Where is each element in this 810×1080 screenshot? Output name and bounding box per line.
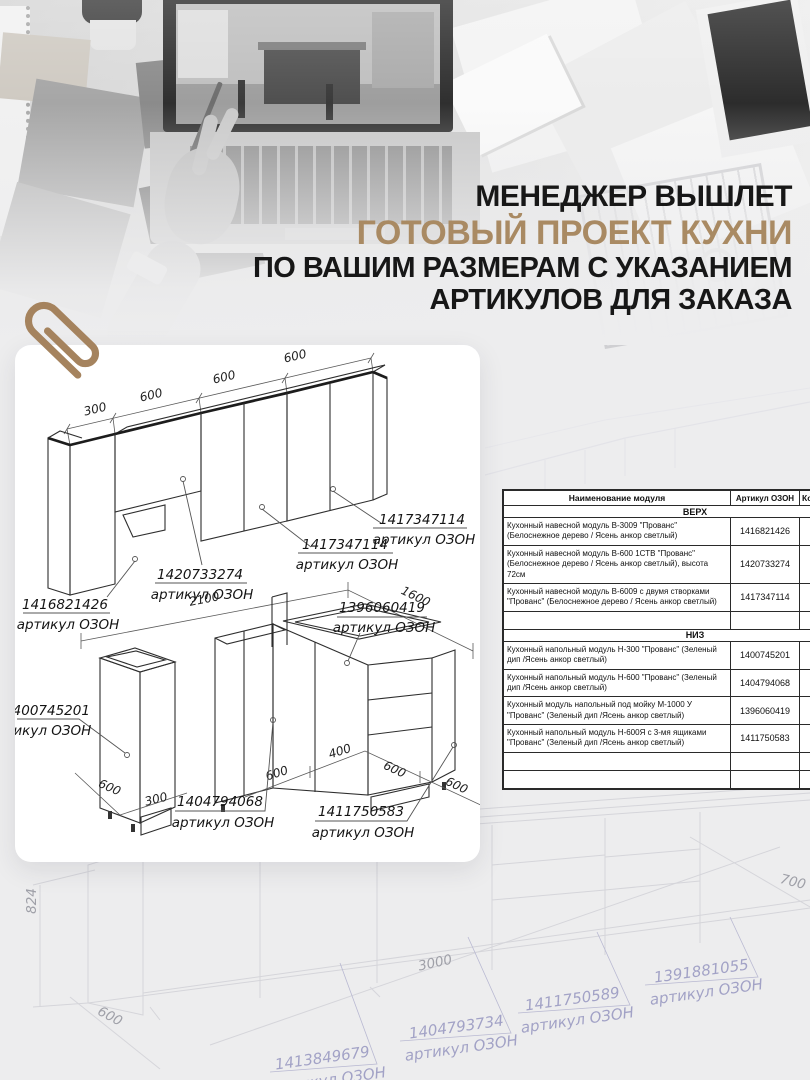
module-article: 1411750583	[731, 725, 800, 753]
table-row: Кухонный напольный модуль Н-600Я с 3-мя …	[503, 725, 810, 753]
article-caption: артикул ОЗОН	[333, 620, 436, 636]
module-article: 1396060419	[731, 697, 800, 725]
module-qty	[800, 545, 810, 583]
article-caption: артикул ОЗОН	[15, 723, 91, 739]
article-number: 1420733274	[157, 567, 243, 583]
col-header-qty: Кол-во	[800, 490, 810, 506]
project-drawing-card: 300 600 600 600	[15, 345, 480, 862]
empty-row	[503, 752, 810, 770]
article-caption: артикул ОЗОН	[373, 532, 476, 548]
empty-cell	[503, 611, 731, 629]
dim-600-depth: 600	[95, 1003, 125, 1029]
module-name: Кухонный напольный модуль Н-600 "Прованс…	[503, 669, 731, 697]
article-number: 1396060419	[339, 600, 425, 616]
table-row: Кухонный напольный модуль Н-600 "Прованс…	[503, 669, 810, 697]
module-name: Кухонный навесной модуль В-600 1СТВ "Про…	[503, 545, 731, 583]
empty-cell	[503, 752, 731, 770]
col-header-article: Артикул ОЗОН	[731, 490, 800, 506]
module-article: 1416821426	[731, 518, 800, 546]
dim-600: 600	[138, 386, 164, 405]
headline-line-4: АРТИКУЛОВ ДЛЯ ЗАКАЗА	[253, 284, 792, 316]
section-row-top: ВЕРХ	[503, 506, 810, 518]
module-article: 1400745201	[731, 641, 800, 669]
article-number: 1416821426	[22, 597, 108, 613]
module-article: 1417347114	[731, 583, 800, 611]
empty-cell	[731, 770, 800, 789]
article-caption: артикул ОЗОН	[17, 617, 120, 633]
headline-line-1: МЕНЕДЖЕР ВЫШЛЕТ	[253, 180, 792, 214]
article-number: 1400745201	[15, 703, 90, 719]
faint-background-sketch	[485, 350, 810, 490]
section-row-bottom: НИЗ	[503, 629, 810, 641]
col-header-name: Наименование модуля	[503, 490, 731, 506]
headline-line-2-accent: ГОТОВЫЙ ПРОЕКТ КУХНИ	[253, 214, 792, 252]
article-caption: артикул ОЗОН	[312, 825, 415, 841]
spec-table: Наименование модуля Артикул ОЗОН Кол-во …	[502, 489, 810, 790]
table-row: Кухонный напольный модуль Н-300 "Прованс…	[503, 641, 810, 669]
table-row: Кухонный навесной модуль В-6009 с двумя …	[503, 583, 810, 611]
empty-cell	[800, 752, 810, 770]
module-name: Кухонный навесной модуль В-6009 с двумя …	[503, 583, 731, 611]
table-row: Кухонный навесной модуль В-600 1СТВ "Про…	[503, 545, 810, 583]
module-name: Кухонный напольный модуль Н-300 "Прованс…	[503, 641, 731, 669]
dim-400-front2: 400	[327, 741, 353, 762]
module-qty	[800, 697, 810, 725]
module-qty	[800, 518, 810, 546]
spec-table-wrap: Наименование модуля Артикул ОЗОН Кол-во …	[502, 489, 810, 790]
article-caption: артикул ОЗОН	[296, 557, 399, 573]
article-caption: артикул ОЗОН	[172, 815, 275, 831]
cabinet-drawings: 300 600 600 600	[15, 345, 480, 862]
module-article: 1404794068	[731, 669, 800, 697]
article-number: 1404794068	[177, 794, 263, 810]
dim-300: 300	[82, 400, 108, 419]
module-qty	[800, 725, 810, 753]
headline: МЕНЕДЖЕР ВЫШЛЕТ ГОТОВЫЙ ПРОЕКТ КУХНИ ПО …	[253, 180, 792, 317]
empty-cell	[800, 611, 810, 629]
table-row: Кухонный навесной модуль В-3009 "Прованс…	[503, 518, 810, 546]
dim-3000: 3000	[417, 952, 454, 975]
dim-600-front3: 600	[381, 758, 408, 781]
module-name: Кухонный модуль напольный под мойку М-10…	[503, 697, 731, 725]
empty-row	[503, 770, 810, 789]
module-qty	[800, 583, 810, 611]
dim-600: 600	[211, 368, 237, 387]
promo-banner: МЕНЕДЖЕР ВЫШЛЕТ ГОТОВЫЙ ПРОЕКТ КУХНИ ПО …	[0, 0, 810, 1080]
dim-300-left-width: 300	[143, 789, 169, 808]
empty-cell	[800, 770, 810, 789]
empty-cell	[731, 611, 800, 629]
empty-cell	[503, 770, 731, 789]
headline-line-3: ПО ВАШИМ РАЗМЕРАМ С УКАЗАНИЕМ	[253, 252, 792, 284]
module-name: Кухонный напольный модуль Н-600Я с 3-мя …	[503, 725, 731, 753]
module-name: Кухонный навесной модуль В-3009 "Прованс…	[503, 518, 731, 546]
table-header-row: Наименование модуля Артикул ОЗОН Кол-во	[503, 490, 810, 506]
empty-row	[503, 611, 810, 629]
section-title-bottom: НИЗ	[503, 629, 810, 641]
article-number: 1417347114	[379, 512, 465, 528]
dim-824: 824	[24, 888, 40, 914]
cabinet-h300: 600 300	[75, 648, 187, 835]
dim-600-right-depth: 600	[443, 774, 470, 797]
module-qty	[800, 641, 810, 669]
table-row: Кухонный модуль напольный под мойку М-10…	[503, 697, 810, 725]
dim-600: 600	[282, 347, 308, 366]
module-article: 1420733274	[731, 545, 800, 583]
module-qty	[800, 669, 810, 697]
section-title-top: ВЕРХ	[503, 506, 810, 518]
dim-700: 700	[779, 871, 808, 893]
article-number: 1411750583	[318, 804, 404, 820]
empty-cell	[731, 752, 800, 770]
